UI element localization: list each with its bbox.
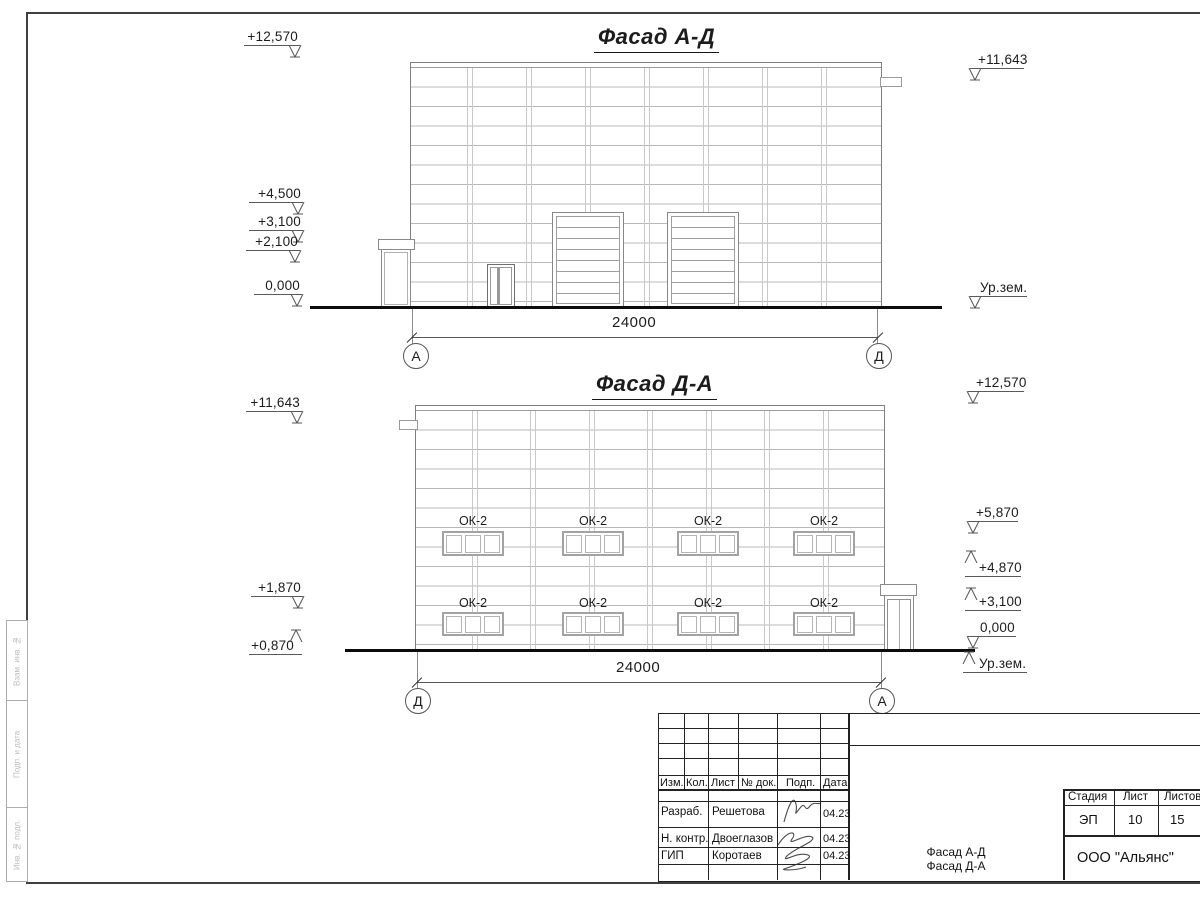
level-arrow-up-icon <box>289 629 303 642</box>
window-tag: ОК-2 <box>562 596 624 610</box>
axis-circle-a: А <box>869 688 895 714</box>
axis-circle-a: А <box>403 343 429 369</box>
panel-joint <box>530 411 536 651</box>
side-stamp-label: Инв. № подл. <box>7 808 27 881</box>
tb-line <box>850 745 1200 746</box>
window-ok2 <box>793 531 855 556</box>
tb-role: ГИП <box>661 850 684 862</box>
tb-stage-value: ЭП <box>1079 812 1098 827</box>
level-arrow-down-icon <box>968 68 982 81</box>
level-value: Ур.зем. <box>980 280 1027 295</box>
sectional-gate <box>667 212 739 308</box>
window-tag: ОК-2 <box>677 514 739 528</box>
facade-ad-building <box>410 62 882 309</box>
signature <box>780 792 824 826</box>
annex-body <box>884 595 914 652</box>
ground-line <box>310 306 942 309</box>
level-value: +11,643 <box>250 395 300 410</box>
level-value: 0,000 <box>980 620 1015 635</box>
window-ok2 <box>677 531 739 556</box>
annex-door <box>384 252 408 305</box>
level-arrow-up-icon <box>964 550 978 563</box>
tb-line <box>708 713 709 880</box>
side-stamp-box: Взам. инв. № <box>6 620 28 702</box>
side-stamp-box: Подп. и дата <box>6 700 28 809</box>
tb-sheet-header: Лист <box>1123 791 1148 803</box>
tb-sheets-value: 15 <box>1170 812 1184 827</box>
tb-name: Двоеглазов <box>712 833 773 845</box>
level-value: 0,000 <box>265 278 300 293</box>
tb-line <box>658 789 848 791</box>
dimension-label: 24000 <box>616 659 660 676</box>
panel-joint <box>644 68 650 308</box>
facade-da-title: Фасад Д-А <box>592 371 717 400</box>
tb-date: 04.23 <box>823 833 851 845</box>
extension-line <box>412 309 413 344</box>
tb-sheets-header: Листов <box>1164 791 1200 803</box>
tb-doc-title-line2: Фасад Д-А <box>849 859 1063 873</box>
dimension-line <box>417 682 881 683</box>
tb-line <box>1063 835 1200 837</box>
extension-line <box>417 652 418 689</box>
tb-line <box>658 758 848 759</box>
axis-letter: Д <box>413 693 422 709</box>
tb-header-kol: Кол. <box>686 777 708 789</box>
tb-name: Коротаев <box>712 850 762 862</box>
axis-circle-d: Д <box>405 688 431 714</box>
window-tag: ОК-2 <box>677 596 739 610</box>
tb-header-izm: Изм. <box>660 777 684 789</box>
panel-joint <box>647 411 653 651</box>
level-arrow-down-icon <box>291 596 305 609</box>
window-ok2 <box>562 612 624 636</box>
tb-header-podp: Подп. <box>786 777 815 789</box>
panel-joint <box>526 68 532 308</box>
panel-joint <box>821 68 827 308</box>
tb-sheet-value: 10 <box>1128 812 1142 827</box>
level-value: +5,870 <box>976 505 1019 520</box>
tb-line <box>658 775 848 776</box>
tb-doc-title: Фасад А-Д Фасад Д-А <box>849 845 1063 873</box>
level-value: +3,100 <box>979 594 1022 609</box>
axis-letter: А <box>877 693 886 709</box>
level-value: +4,500 <box>258 186 301 201</box>
tb-line <box>1063 805 1200 806</box>
dimension-line <box>412 337 878 338</box>
tb-role: Н. контр. <box>661 833 708 845</box>
panel-joint <box>764 411 770 651</box>
window-ok2 <box>677 612 739 636</box>
dimension-label: 24000 <box>612 314 656 331</box>
annex-door <box>887 599 911 651</box>
axis-letter: Д <box>874 348 883 364</box>
level-value: +12,570 <box>976 375 1027 390</box>
level-arrow-down-icon <box>288 45 302 58</box>
window-ok2 <box>442 531 504 556</box>
window-tag: ОК-2 <box>442 596 504 610</box>
tb-line <box>738 713 739 789</box>
tb-date: 04.23 <box>823 808 851 820</box>
tb-line <box>658 728 848 729</box>
level-value: +3,100 <box>258 214 301 229</box>
facade-ad-title: Фасад А-Д <box>594 24 719 53</box>
window-ok2 <box>562 531 624 556</box>
level-arrow-down-icon <box>968 296 982 309</box>
side-stamp-label: Взам. инв. № <box>7 621 27 701</box>
tb-doc-title-line1: Фасад А-Д <box>849 845 1063 859</box>
tb-name: Решетова <box>712 806 765 818</box>
level-arrow-down-icon <box>288 250 302 263</box>
level-arrow-up-icon <box>964 587 978 600</box>
level-value: +1,870 <box>258 580 301 595</box>
window-tag: ОК-2 <box>442 514 504 528</box>
level-arrow-up-icon <box>962 651 976 664</box>
annex-body <box>381 249 411 308</box>
window-ok2 <box>442 612 504 636</box>
axis-letter: А <box>411 348 420 364</box>
axis-circle-d: Д <box>866 343 892 369</box>
level-value: +0,870 <box>251 638 294 653</box>
tb-header-list: Лист <box>711 777 735 789</box>
panel-joint <box>762 68 768 308</box>
tb-line <box>1158 789 1159 835</box>
window-tag: ОК-2 <box>562 514 624 528</box>
level-value: +4,870 <box>979 560 1022 575</box>
window-tag: ОК-2 <box>793 596 855 610</box>
tb-header-ndok: № док. <box>741 777 776 789</box>
level-arrow-down-icon <box>966 391 980 404</box>
tb-line <box>1114 789 1115 835</box>
tb-company: ООО "Альянс" <box>1077 850 1174 866</box>
window-ok2 <box>793 612 855 636</box>
panel-joint <box>467 68 473 308</box>
signature <box>772 827 824 875</box>
side-stamp-label: Подп. и дата <box>7 701 27 808</box>
side-stamp-box: Инв. № подл. <box>6 807 28 882</box>
extension-line <box>881 652 882 689</box>
tb-stage-header: Стадия <box>1068 791 1107 803</box>
level-arrow-down-icon <box>966 636 980 649</box>
pipe-outlet <box>399 420 418 430</box>
level-value: +12,570 <box>247 29 298 44</box>
window-tag: ОК-2 <box>793 514 855 528</box>
level-value: Ур.зем. <box>979 656 1026 671</box>
level-arrow-down-icon <box>966 521 980 534</box>
level-value: +11,643 <box>978 52 1028 67</box>
level-arrow-down-icon <box>290 411 304 424</box>
level-value: +2,100 <box>255 234 298 249</box>
drawing-sheet: Взам. инв. № Подп. и дата Инв. № подл. Ф… <box>0 0 1200 900</box>
tb-date: 04.23 <box>823 850 851 862</box>
entrance-door <box>487 264 515 308</box>
sectional-gate <box>552 212 624 308</box>
tb-header-data: Дата <box>823 777 847 789</box>
tb-line <box>658 743 848 744</box>
tb-role: Разраб. <box>661 806 702 818</box>
tb-line <box>684 713 685 789</box>
pipe-outlet <box>880 77 902 87</box>
level-arrow-down-icon <box>290 294 304 307</box>
